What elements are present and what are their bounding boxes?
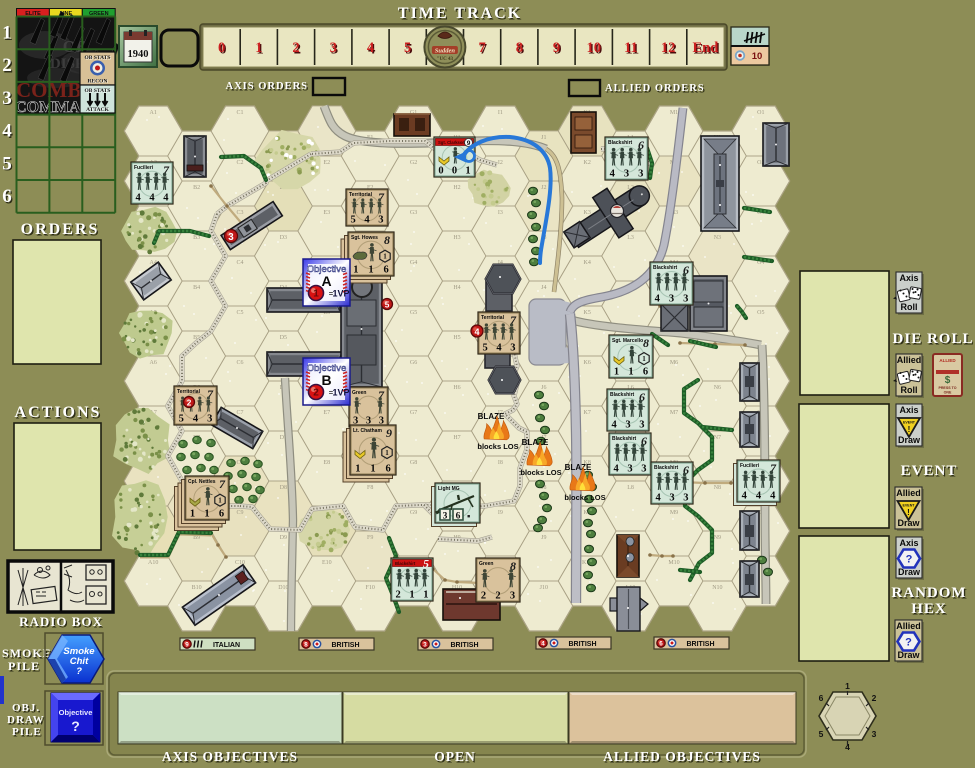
svg-text:BLAZE: BLAZE [522,438,549,447]
svg-text:5: 5 [819,729,824,739]
svg-text:A10: A10 [148,560,158,566]
svg-text:Roll: Roll [901,302,918,312]
svg-text:3: 3 [669,294,674,305]
svg-text:J2: J2 [541,185,546,191]
svg-text:Green: Green [352,390,366,396]
svg-text:3: 3 [510,343,515,354]
svg-text:M1: M1 [670,110,678,116]
svg-text:3: 3 [2,88,12,109]
svg-text:O1: O1 [757,110,764,116]
svg-text:Lt. Chatham: Lt. Chatham [353,428,382,434]
svg-text:4: 4 [136,193,142,204]
svg-text:F9: F9 [367,535,373,541]
svg-text:1: 1 [385,449,389,457]
svg-text:A6: A6 [150,360,157,366]
svg-text:3: 3 [228,232,234,243]
svg-text:OBJ.: OBJ. [12,702,40,714]
svg-text:4: 4 [2,121,12,142]
svg-text:1: 1 [2,23,12,44]
svg-text:K6: K6 [584,360,591,366]
svg-text:BRITISH: BRITISH [332,642,360,649]
svg-text:1: 1 [614,367,619,378]
svg-text:4: 4 [655,294,661,305]
svg-text:EVENT: EVENT [901,463,958,479]
svg-text:1940: 1940 [128,49,149,60]
svg-text:10: 10 [587,40,602,56]
svg-text:E3: E3 [323,210,330,216]
svg-text:OPEN: OPEN [434,749,476,764]
svg-text:Allied: Allied [897,355,922,365]
svg-text:3: 3 [638,169,643,180]
svg-text:8: 8 [304,642,308,649]
svg-text:E10: E10 [322,560,332,566]
svg-text:12: 12 [661,40,676,56]
svg-text:3: 3 [641,464,646,475]
svg-text:?: ? [76,666,82,677]
svg-text:!: ! [907,508,910,517]
svg-text:B2: B2 [193,185,200,191]
svg-text:ATTACK: ATTACK [86,107,109,113]
svg-text:E8: E8 [323,460,330,466]
svg-text:$: $ [945,375,951,386]
svg-text:6: 6 [456,512,461,522]
svg-text:K7: K7 [584,410,591,416]
svg-text:AXIS ORDERS: AXIS ORDERS [226,81,308,92]
svg-text:PILE: PILE [12,726,42,738]
svg-text:Sgt. Clarkson: Sgt. Clarkson [438,140,465,145]
svg-text:3: 3 [443,512,448,522]
svg-text:G4: G4 [410,260,417,266]
svg-text:"UC 43: "UC 43 [437,57,454,62]
svg-text:K4: K4 [584,260,591,266]
svg-text:2: 2 [396,590,401,601]
svg-text:9: 9 [553,40,560,56]
svg-text:Fucilieri: Fucilieri [134,165,154,171]
svg-text:K3: K3 [584,210,591,216]
svg-text:C5: C5 [236,310,243,316]
svg-text:3: 3 [207,414,212,425]
svg-text:6: 6 [819,693,824,703]
svg-text:OB STATS: OB STATS [85,55,111,61]
svg-text:6: 6 [219,509,224,520]
svg-text:ALLIED ORDERS: ALLIED ORDERS [605,83,705,94]
svg-text:ONE: ONE [944,391,952,395]
svg-text:5: 5 [2,153,12,174]
svg-text:Axis: Axis [899,405,918,415]
svg-text:BRITISH: BRITISH [687,641,715,648]
svg-text:N7: N7 [714,435,721,441]
svg-text:5: 5 [385,301,390,310]
svg-text:BRITISH: BRITISH [451,642,479,649]
svg-text:End: End [692,40,718,56]
svg-text:3: 3 [639,420,644,431]
svg-text:Axis: Axis [899,538,918,548]
svg-text:D10: D10 [278,585,288,591]
svg-text:G8: G8 [410,460,417,466]
svg-text:4: 4 [364,215,370,226]
svg-text:C6: C6 [236,360,243,366]
svg-text:4: 4 [541,641,545,648]
svg-text:1: 1 [355,464,360,475]
svg-text:blocks LOS: blocks LOS [520,468,561,477]
svg-text:5: 5 [351,215,356,226]
svg-text:E2: E2 [323,160,330,166]
svg-text:6: 6 [2,186,12,207]
svg-text:O5: O5 [757,310,764,316]
svg-text:H5: H5 [453,335,460,341]
svg-text:A1: A1 [150,110,157,116]
svg-text:4: 4 [496,343,502,354]
svg-text:1VP: 1VP [332,388,349,398]
svg-text:4: 4 [770,491,776,502]
svg-text:BLAZE: BLAZE [565,463,592,472]
svg-text:Blackshirt: Blackshirt [610,392,635,398]
svg-text:7: 7 [219,477,226,491]
svg-text:M7: M7 [670,410,678,416]
svg-text:ITALIAN: ITALIAN [213,642,240,649]
svg-text:DIE ROLL: DIE ROLL [893,331,974,347]
svg-text:5: 5 [404,40,411,56]
svg-text:E7: E7 [323,410,330,416]
svg-text:J1: J1 [541,135,546,141]
svg-text:7: 7 [478,40,485,56]
svg-text:I3: I3 [498,210,503,216]
svg-text:3: 3 [330,40,337,56]
svg-text:Blackshirt: Blackshirt [654,465,679,471]
svg-text:G3: G3 [410,210,417,216]
svg-text:H4: H4 [453,285,460,291]
svg-text:Sudden: Sudden [435,48,456,55]
svg-text:3: 3 [683,493,688,504]
svg-text:1: 1 [628,367,633,378]
svg-text:ALLIED: ALLIED [939,358,956,363]
svg-text:1: 1 [370,464,375,475]
svg-text:A: A [321,273,331,289]
svg-text:4: 4 [656,493,662,504]
svg-text:6: 6 [386,464,391,475]
svg-text:M6: M6 [670,360,678,366]
svg-text:4: 4 [193,414,199,425]
svg-text:N9: N9 [714,535,721,541]
svg-text:2: 2 [481,591,486,602]
svg-text:0: 0 [438,166,443,177]
svg-text:G5: G5 [410,310,417,316]
svg-text:8: 8 [384,233,390,247]
svg-text:1: 1 [409,590,414,601]
svg-text:!: ! [908,425,911,434]
svg-text:Objective: Objective [59,708,93,717]
svg-text:G7: G7 [410,410,417,416]
svg-text:B: B [321,372,331,388]
svg-text:C2: C2 [236,160,243,166]
svg-text:H3: H3 [453,235,460,241]
svg-text:blocks LOS: blocks LOS [477,442,518,451]
svg-text:N8: N8 [714,485,721,491]
svg-text:F10: F10 [366,585,375,591]
svg-text:N6: N6 [714,385,721,391]
svg-text:PILE: PILE [8,659,40,673]
svg-text:6: 6 [384,265,389,276]
svg-text:Fucilieri: Fucilieri [740,463,760,469]
svg-text:3: 3 [683,294,688,305]
svg-text:3: 3 [624,169,629,180]
svg-text:B4: B4 [193,285,200,291]
svg-text:9: 9 [185,642,189,649]
svg-text:Roll: Roll [901,385,918,395]
svg-text:RANDOM: RANDOM [891,585,966,601]
svg-text:ALLIED OBJECTIVES: ALLIED OBJECTIVES [603,749,761,764]
svg-text:8: 8 [643,336,649,350]
svg-text:C3: C3 [236,210,243,216]
svg-text:1: 1 [845,681,850,691]
svg-text:2: 2 [187,399,192,408]
svg-text:?: ? [905,637,912,649]
svg-text:1: 1 [313,289,319,300]
svg-text:BRITISH: BRITISH [569,641,597,648]
svg-text:D3: D3 [280,235,287,241]
svg-text:8: 8 [516,40,523,56]
svg-text:ACTIONS: ACTIONS [15,404,102,421]
svg-text:DRAW: DRAW [7,714,45,726]
svg-text:SMOKE: SMOKE [2,646,52,660]
svg-text:ORDERS: ORDERS [21,221,100,238]
svg-text:RADIO BOX: RADIO BOX [19,614,103,629]
svg-text:6: 6 [659,641,663,648]
svg-text:EVENT: EVENT [903,421,916,425]
svg-text:4: 4 [756,491,762,502]
svg-text:1: 1 [204,509,209,520]
svg-text:RECON: RECON [88,79,108,85]
svg-text:4: 4 [610,169,616,180]
svg-text:2: 2 [495,591,500,602]
svg-text:3: 3 [378,215,383,226]
svg-text:Territorial: Territorial [177,389,201,395]
svg-text:4: 4 [742,491,748,502]
svg-text:J6: J6 [541,385,546,391]
svg-text:Territorial: Territorial [349,192,373,198]
svg-text:3: 3 [872,729,877,739]
svg-text:G2: G2 [410,160,417,166]
svg-text:Territorial: Territorial [481,315,505,321]
svg-text:1: 1 [465,166,470,177]
svg-text:D8: D8 [280,485,287,491]
svg-text:AXIS OBJECTIVES: AXIS OBJECTIVES [162,749,298,764]
svg-text:C1: C1 [236,110,243,116]
svg-text:2: 2 [313,388,319,399]
svg-text:5: 5 [423,557,429,571]
svg-text:4: 4 [474,327,479,337]
svg-text:9: 9 [386,426,392,440]
svg-text:Axis: Axis [899,273,918,283]
svg-text:BLAZE: BLAZE [478,412,505,421]
svg-text:K2: K2 [584,160,591,166]
svg-text:Blackshirt: Blackshirt [608,140,633,146]
svg-text:1: 1 [190,509,195,520]
svg-text:H6: H6 [453,385,460,391]
svg-text:10: 10 [752,51,763,62]
svg-text:H7: H7 [453,435,460,441]
svg-text:blocks LOS: blocks LOS [564,493,605,502]
svg-text:6: 6 [643,367,648,378]
svg-text:4: 4 [614,464,620,475]
svg-text:TIME TRACK: TIME TRACK [398,5,522,22]
svg-text:4: 4 [612,420,618,431]
svg-text:Allied: Allied [896,621,921,631]
svg-text:C7: C7 [236,410,243,416]
svg-text:?: ? [906,554,913,566]
svg-text:PRESS TO: PRESS TO [938,386,956,390]
svg-text:K5: K5 [584,310,591,316]
svg-text:4: 4 [163,193,169,204]
svg-text:1: 1 [383,253,387,261]
svg-text:3: 3 [627,464,632,475]
svg-text:Blackshirt: Blackshirt [653,265,678,271]
svg-text:Blackshirt: Blackshirt [395,561,416,566]
svg-text:C4: C4 [236,260,243,266]
svg-text:M10: M10 [668,560,679,566]
svg-text:Sgt. Marcello: Sgt. Marcello [612,338,643,344]
svg-text:C9: C9 [236,510,243,516]
svg-text:D9: D9 [280,535,287,541]
svg-text:N3: N3 [714,235,721,241]
svg-text:I8: I8 [498,460,503,466]
svg-text:M9: M9 [670,510,678,516]
svg-text:J10: J10 [540,585,548,591]
svg-text:4: 4 [149,193,155,204]
svg-text:L8: L8 [627,485,634,491]
svg-text:D5: D5 [280,335,287,341]
svg-text:11: 11 [624,40,638,56]
svg-text:B10: B10 [192,585,202,591]
svg-text:3: 3 [423,642,427,649]
svg-text:I2: I2 [498,160,503,166]
svg-text:I1: I1 [498,110,503,116]
svg-text:3: 3 [625,420,630,431]
svg-text:B3: B3 [193,235,200,241]
svg-text:3: 3 [669,493,674,504]
svg-text:2: 2 [2,55,12,76]
svg-text:J4: J4 [541,285,546,291]
svg-text:1: 1 [255,40,262,56]
svg-text:G6: G6 [410,360,417,366]
svg-text:L3: L3 [627,235,634,241]
svg-text:Sgt. Howes: Sgt. Howes [351,235,378,241]
svg-text:Cpl. Nettles: Cpl. Nettles [188,479,216,485]
svg-text:EVENT: EVENT [903,504,916,508]
svg-text:1VP: 1VP [332,289,349,299]
svg-text:Allied: Allied [896,488,921,498]
svg-text:1: 1 [218,497,222,505]
svg-text:H2: H2 [453,185,460,191]
svg-text:F8: F8 [367,485,373,491]
svg-text:?: ? [71,718,80,734]
svg-text:4: 4 [367,40,374,56]
svg-text:2: 2 [292,40,299,56]
svg-text:I9: I9 [498,510,503,516]
svg-text:1: 1 [353,265,358,276]
svg-text:J9: J9 [541,535,546,541]
svg-text:N10: N10 [712,585,722,591]
svg-text:1: 1 [642,355,646,363]
svg-text:1: 1 [368,265,373,276]
svg-text:0: 0 [218,40,225,56]
svg-text:2: 2 [872,693,877,703]
svg-text:Green: Green [479,561,493,567]
svg-text:5: 5 [179,414,184,425]
svg-text:HEX: HEX [911,601,947,617]
svg-text:5: 5 [483,343,488,354]
svg-text:0: 0 [452,166,457,177]
svg-text:Light MG: Light MG [438,486,460,492]
svg-text:G9: G9 [410,510,417,516]
svg-text:1: 1 [423,590,428,601]
svg-text:Blackshirt: Blackshirt [612,436,637,442]
svg-text:3: 3 [510,591,515,602]
